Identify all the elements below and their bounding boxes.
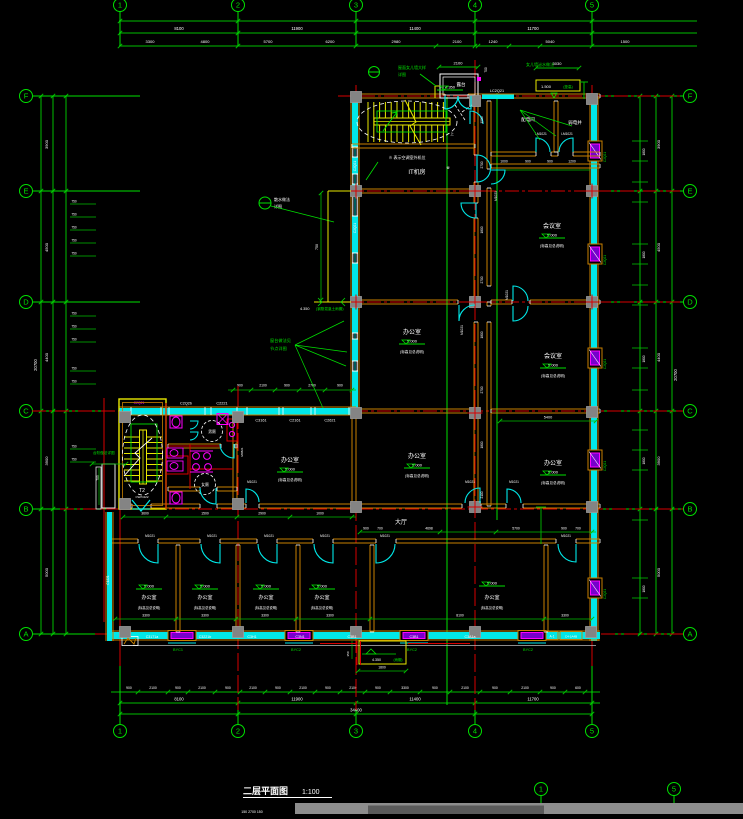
svg-text:750: 750	[71, 200, 77, 204]
svg-text:屋面女儿墙大样: 屋面女儿墙大样	[398, 64, 426, 70]
svg-text:IT机房: IT机房	[408, 168, 425, 176]
svg-text:3030: 3030	[553, 61, 563, 66]
svg-text:750: 750	[71, 213, 77, 217]
svg-text:150 2700 150: 150 2700 150	[241, 810, 262, 814]
svg-text:办公室: 办公室	[408, 452, 426, 460]
svg-text:T2: T2	[139, 488, 145, 494]
svg-text:BYC2: BYC2	[523, 648, 533, 652]
svg-text:3300: 3300	[142, 614, 150, 618]
svg-text:台阶做法详图: 台阶做法详图	[93, 450, 115, 455]
svg-text:C1221: C1221	[106, 575, 110, 585]
svg-text:20700: 20700	[33, 359, 38, 371]
svg-text:5: 5	[672, 785, 676, 794]
svg-text:5040: 5040	[546, 39, 556, 44]
svg-text:11400: 11400	[409, 26, 421, 31]
svg-text:办公室: 办公室	[197, 594, 212, 601]
svg-text:B: B	[687, 505, 692, 514]
svg-text:1800: 1800	[642, 148, 646, 155]
svg-text:5: 5	[590, 727, 594, 736]
svg-text:BYC2: BYC2	[407, 648, 417, 652]
svg-text:会议室: 会议室	[543, 222, 561, 230]
svg-text:11900: 11900	[291, 26, 303, 31]
svg-text:750: 750	[71, 367, 77, 371]
svg-text:2700: 2700	[480, 386, 484, 393]
svg-text:900: 900	[337, 384, 343, 388]
svg-text:900: 900	[525, 160, 531, 164]
svg-text:BYC2: BYC2	[291, 648, 301, 652]
svg-text:A: A	[23, 630, 28, 639]
svg-text:C3221b: C3221b	[199, 635, 212, 639]
svg-text:M1021: M1021	[465, 480, 475, 484]
svg-text:1500: 1500	[480, 116, 484, 123]
svg-text:5: 5	[590, 1, 594, 10]
svg-text:办公室: 办公室	[281, 456, 299, 464]
svg-text:3900: 3900	[44, 456, 49, 466]
svg-text:4400: 4400	[44, 352, 49, 362]
svg-text:M1021: M1021	[247, 480, 257, 484]
svg-text:C2Q2b: C2Q2b	[180, 402, 192, 406]
svg-text:M1021: M1021	[509, 480, 519, 484]
svg-text:4: 4	[473, 727, 477, 736]
svg-text:M1021: M1021	[320, 534, 330, 538]
svg-text:C2621: C2621	[324, 419, 335, 423]
svg-text:1800: 1800	[642, 251, 646, 258]
svg-text:1500: 1500	[201, 512, 209, 516]
svg-text:二层平面图: 二层平面图	[243, 786, 288, 796]
svg-text:900: 900	[432, 686, 438, 690]
svg-text:C3161: C3161	[255, 419, 266, 423]
svg-text:1240: 1240	[489, 39, 499, 44]
svg-text:20700: 20700	[673, 369, 678, 381]
svg-text:900: 900	[325, 686, 331, 690]
svg-text:1800: 1800	[480, 331, 484, 338]
svg-text:E: E	[23, 187, 28, 196]
svg-text:11400: 11400	[409, 697, 421, 702]
svg-text:M1021: M1021	[494, 191, 498, 201]
svg-text:C3B1: C3B1	[348, 635, 357, 639]
svg-text:900: 900	[275, 686, 281, 690]
svg-text:F: F	[688, 92, 693, 101]
svg-text:2100: 2100	[249, 686, 257, 690]
svg-text:2980: 2980	[392, 39, 402, 44]
svg-text:散水做法: 散水做法	[274, 196, 290, 202]
svg-text:办公室: 办公室	[544, 459, 562, 467]
svg-text:(标高见总说明): (标高见总说明)	[311, 605, 334, 610]
svg-text:(标高见总说明): (标高见总说明)	[194, 605, 217, 610]
svg-text:900: 900	[547, 160, 553, 164]
svg-text:750: 750	[71, 312, 77, 316]
svg-text:2100: 2100	[299, 686, 307, 690]
svg-text:C: C	[23, 407, 29, 416]
svg-text:B: B	[23, 505, 28, 514]
svg-text:2100: 2100	[198, 686, 206, 690]
svg-text:C3B1: C3B1	[410, 635, 419, 639]
svg-text:750: 750	[71, 252, 77, 256]
svg-text:350: 350	[346, 651, 350, 656]
svg-text:1: 1	[539, 785, 543, 794]
svg-text:750: 750	[71, 338, 77, 342]
svg-text:BYC1: BYC1	[173, 648, 183, 652]
svg-text:D: D	[687, 298, 693, 307]
svg-text:2100: 2100	[454, 61, 464, 66]
svg-text:8100: 8100	[174, 26, 184, 31]
svg-text:3300: 3300	[326, 614, 334, 618]
svg-text:900: 900	[363, 527, 369, 531]
svg-text:3900: 3900	[44, 139, 49, 149]
svg-text:E: E	[687, 187, 692, 196]
svg-text:节点详图: 节点详图	[270, 345, 287, 352]
svg-text:4500: 4500	[44, 242, 49, 252]
svg-text:(雨棚): (雨棚)	[393, 657, 402, 662]
svg-text:1: 1	[118, 727, 122, 736]
svg-text:4698: 4698	[425, 527, 433, 531]
svg-text:1800: 1800	[642, 457, 646, 464]
svg-text:C2161: C2161	[289, 419, 300, 423]
svg-text:(垫高): (垫高)	[563, 84, 573, 89]
svg-text:(标高见总说明): (标高见总说明)	[405, 473, 429, 478]
svg-text:2100: 2100	[480, 491, 484, 498]
svg-text:8100: 8100	[456, 614, 464, 618]
svg-text:750: 750	[71, 458, 77, 462]
svg-text:1500: 1500	[621, 39, 631, 44]
svg-text:4800: 4800	[201, 39, 211, 44]
svg-text:1000: 1000	[316, 512, 324, 516]
svg-text:5400: 5400	[544, 416, 552, 420]
svg-text:1800: 1800	[642, 585, 646, 592]
svg-text:C3A1a: C3A1a	[465, 635, 476, 639]
svg-text:4: 4	[473, 1, 477, 10]
svg-text:8100: 8100	[174, 697, 184, 702]
svg-text:4500: 4500	[656, 242, 661, 252]
svg-text:1:100: 1:100	[302, 789, 320, 796]
svg-text:3300: 3300	[201, 614, 209, 618]
svg-text:750: 750	[71, 325, 77, 329]
svg-text:3300: 3300	[561, 614, 569, 618]
svg-text:C2Q21: C2Q21	[603, 589, 607, 599]
svg-text:(标高见总说明): (标高见总说明)	[278, 477, 302, 482]
svg-text:900: 900	[175, 686, 181, 690]
svg-text:700: 700	[96, 475, 100, 481]
svg-text:750: 750	[71, 445, 77, 449]
svg-text:(钢筋混凰土雨棚): (钢筋混凰土雨棚)	[316, 306, 344, 311]
svg-text:※ 表示空调室外机位: ※ 表示空调室外机位	[388, 154, 425, 160]
svg-text:C3N1: C3N1	[295, 635, 304, 639]
svg-text:2700: 2700	[480, 276, 484, 283]
svg-text:2100: 2100	[461, 686, 469, 690]
svg-text:750: 750	[315, 244, 319, 250]
svg-text:1800: 1800	[378, 666, 386, 670]
svg-text:※: ※	[446, 165, 450, 170]
svg-text:11700: 11700	[527, 697, 539, 702]
svg-text:900: 900	[492, 686, 498, 690]
svg-text:办公室: 办公室	[314, 594, 329, 601]
svg-text:会议室: 会议室	[544, 352, 562, 360]
svg-text:详图: 详图	[398, 71, 406, 77]
svg-text:上: 上	[450, 131, 454, 136]
svg-text:(标高见总说明): (标高见总说明)	[138, 605, 161, 610]
svg-text:900: 900	[284, 384, 290, 388]
svg-text:M1021: M1021	[145, 534, 155, 538]
svg-text:(标高见总说明): (标高见总说明)	[255, 605, 278, 610]
svg-text:LM1021: LM1021	[561, 132, 573, 136]
svg-text:2100: 2100	[149, 686, 157, 690]
svg-text:2900: 2900	[258, 512, 266, 516]
svg-text:F: F	[24, 92, 29, 101]
svg-text:(标高见总说明): (标高见总说明)	[540, 243, 564, 248]
svg-text:女儿墙泌水做法: 女儿墙泌水做法	[526, 61, 554, 67]
svg-text:4.350: 4.350	[372, 658, 381, 662]
svg-text:1000: 1000	[500, 160, 508, 164]
svg-text:900: 900	[126, 686, 132, 690]
svg-text:1.500: 1.500	[541, 84, 552, 89]
svg-text:M0821: M0821	[240, 447, 244, 457]
svg-text:5000: 5000	[656, 567, 661, 577]
svg-text:C: C	[687, 407, 693, 416]
svg-text:600: 600	[575, 686, 581, 690]
svg-text:大厅: 大厅	[395, 518, 407, 526]
svg-text:2: 2	[236, 727, 240, 736]
svg-text:女厕: 女厕	[201, 482, 209, 487]
svg-text:4400: 4400	[656, 352, 661, 362]
svg-text:1: 1	[118, 1, 122, 10]
svg-text:LC2Q21: LC2Q21	[490, 89, 504, 93]
svg-text:C3H1: C3H1	[247, 635, 256, 639]
svg-text:露台: 露台	[457, 81, 466, 88]
svg-text:900: 900	[550, 686, 556, 690]
svg-text:3: 3	[354, 1, 358, 10]
svg-text:900: 900	[375, 686, 381, 690]
svg-text:750: 750	[71, 226, 77, 230]
svg-text:5000: 5000	[44, 567, 49, 577]
svg-text:M1021: M1021	[264, 534, 274, 538]
svg-text:1200: 1200	[568, 160, 576, 164]
svg-text:5700: 5700	[264, 39, 274, 44]
svg-text:M1021: M1021	[505, 290, 509, 300]
svg-text:办公室: 办公室	[141, 594, 156, 601]
svg-text:C2Q21: C2Q21	[603, 359, 607, 369]
svg-text:3300: 3300	[146, 39, 156, 44]
svg-text:11900: 11900	[291, 697, 303, 702]
svg-text:C2Q21: C2Q21	[134, 401, 145, 405]
svg-text:C2Q21: C2Q21	[603, 461, 607, 471]
svg-text:办公室: 办公室	[403, 328, 421, 336]
svg-text:M1021: M1021	[561, 534, 571, 538]
svg-text:700: 700	[484, 67, 488, 73]
svg-text:C2Q21: C2Q21	[603, 255, 607, 265]
svg-text:1800: 1800	[642, 355, 646, 362]
svg-text:5700: 5700	[512, 527, 520, 531]
svg-text:11700: 11700	[527, 26, 539, 31]
svg-text:男厕: 男厕	[208, 429, 216, 434]
svg-text:窗台做法见: 窗台做法见	[270, 337, 291, 344]
svg-text:750: 750	[71, 239, 77, 243]
svg-text:(标高见总说明): (标高见总说明)	[400, 349, 424, 354]
svg-text:C2Q21: C2Q21	[353, 161, 357, 171]
svg-text:(标高见总说明): (标高见总说明)	[541, 480, 565, 485]
svg-text:3600: 3600	[141, 512, 149, 516]
svg-text:C2221: C2221	[216, 402, 227, 406]
svg-text:900: 900	[225, 686, 231, 690]
svg-text:2: 2	[236, 1, 240, 10]
svg-text:(标高见总说明): (标高见总说明)	[541, 373, 565, 378]
svg-text:办公室: 办公室	[258, 594, 273, 601]
svg-text:3300: 3300	[261, 614, 269, 618]
svg-text:6200: 6200	[326, 39, 336, 44]
svg-text:2700: 2700	[480, 161, 484, 168]
svg-text:弱电井: 弱电井	[568, 119, 582, 126]
svg-text:A-1: A-1	[550, 635, 555, 639]
svg-text:CW/C222: CW/C222	[135, 495, 148, 499]
svg-text:C4-1A4B: C4-1A4B	[565, 635, 577, 639]
svg-text:C2Q21: C2Q21	[353, 223, 357, 233]
svg-text:C2Q21: C2Q21	[603, 152, 607, 162]
svg-text:办公室: 办公室	[484, 594, 499, 601]
svg-text:4.350: 4.350	[300, 307, 310, 311]
svg-text:M1021: M1021	[380, 534, 390, 538]
svg-text:1800: 1800	[480, 226, 484, 233]
svg-text:2100: 2100	[453, 39, 463, 44]
svg-text:3300: 3300	[401, 686, 409, 690]
svg-text:C3171a: C3171a	[146, 635, 159, 639]
svg-text:700: 700	[575, 527, 581, 531]
svg-text:700: 700	[377, 527, 383, 531]
svg-text:3: 3	[354, 727, 358, 736]
svg-text:750: 750	[71, 380, 77, 384]
svg-text:3900: 3900	[656, 139, 661, 149]
svg-text:3900: 3900	[656, 456, 661, 466]
svg-text:1800: 1800	[480, 441, 484, 448]
svg-text:(标高见总说明): (标高见总说明)	[481, 605, 504, 610]
svg-text:D: D	[23, 298, 29, 307]
svg-text:2100: 2100	[521, 686, 529, 690]
svg-text:A: A	[687, 630, 692, 639]
svg-text:2100: 2100	[259, 384, 267, 388]
svg-text:M1021: M1021	[207, 534, 217, 538]
svg-text:900: 900	[561, 527, 567, 531]
svg-text:M1021: M1021	[460, 325, 464, 335]
